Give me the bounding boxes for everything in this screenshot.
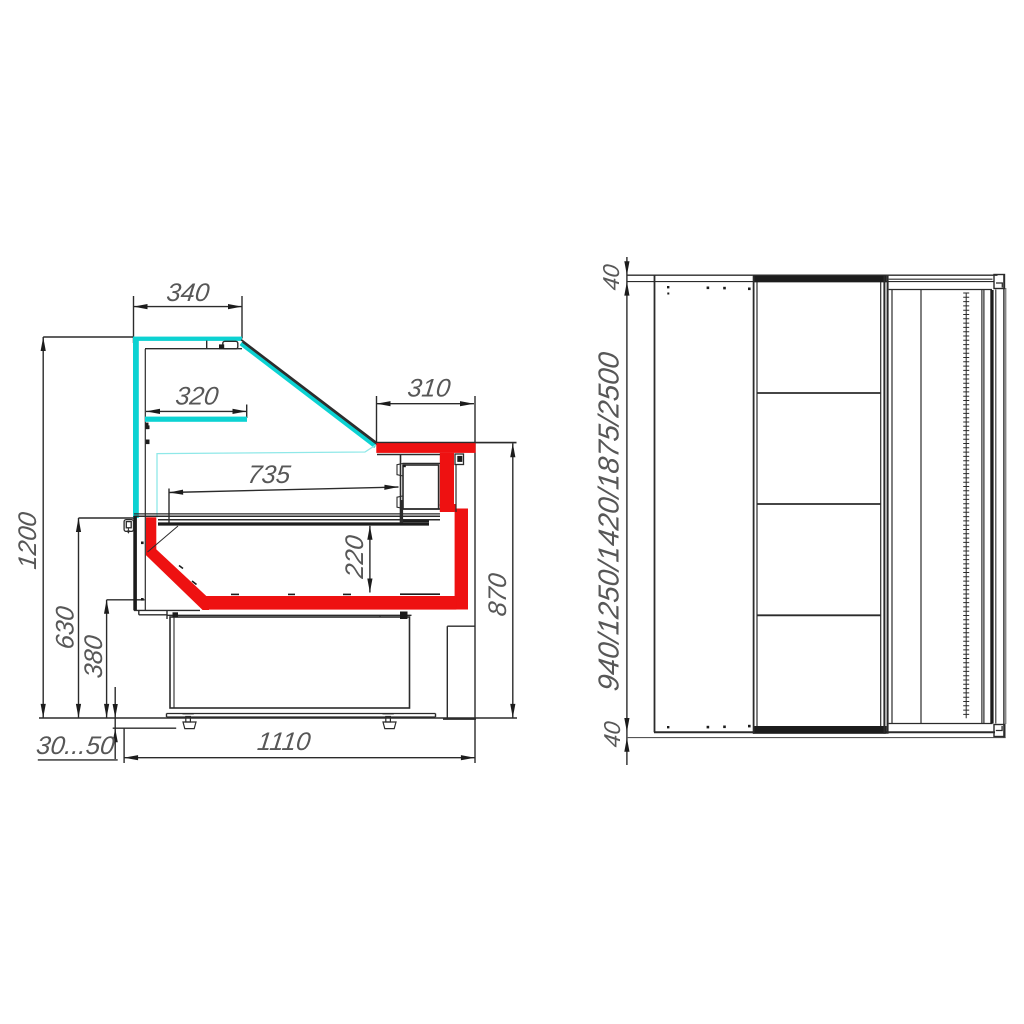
svg-text:940/1250/1420/1875/2500: 940/1250/1420/1875/2500 [594, 350, 626, 692]
svg-text:340: 340 [165, 279, 212, 307]
svg-text:870: 870 [484, 571, 512, 618]
svg-text:735: 735 [246, 461, 293, 489]
svg-text:40: 40 [598, 263, 624, 292]
svg-text:40: 40 [599, 720, 625, 749]
svg-text:30...50: 30...50 [35, 732, 117, 760]
svg-text:310: 310 [406, 375, 453, 403]
svg-text:1110: 1110 [256, 728, 313, 756]
svg-text:630: 630 [52, 604, 80, 651]
svg-text:1200: 1200 [14, 510, 42, 571]
svg-text:320: 320 [174, 383, 221, 411]
svg-text:380: 380 [80, 633, 108, 680]
svg-text:220: 220 [341, 533, 369, 581]
